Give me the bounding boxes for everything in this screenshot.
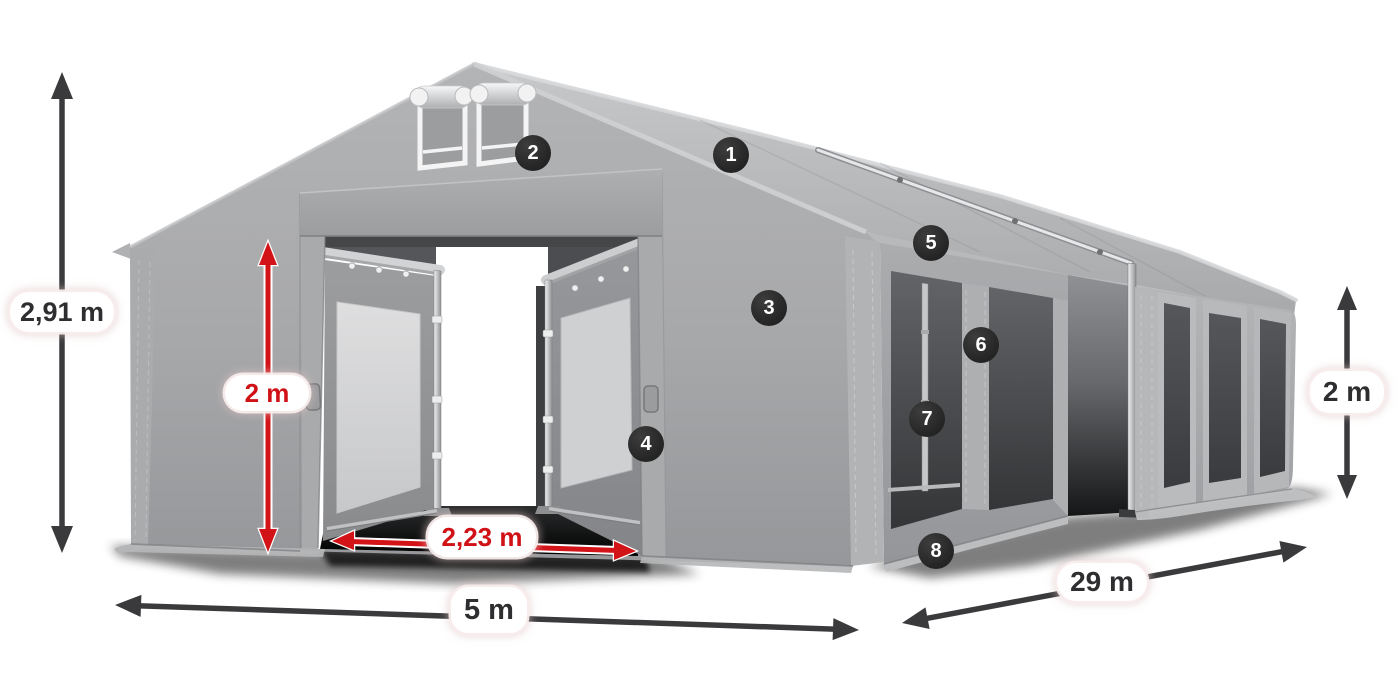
rolled-door-right: [535, 242, 642, 556]
callout-badge-2[interactable]: 2: [515, 135, 551, 171]
callout-badge-1[interactable]: 1: [713, 137, 749, 173]
dimension-label-front-width: 5 m: [451, 587, 527, 633]
dimension-label-door-width: 2,23 m: [428, 517, 536, 557]
callout-badge-5[interactable]: 5: [913, 225, 949, 261]
callout-badge-8[interactable]: 8: [918, 533, 954, 569]
door-pole-left: [434, 270, 441, 512]
rolled-door-left: [322, 252, 452, 541]
callout-badge-7[interactable]: 7: [909, 401, 945, 437]
rear-window-1: [1164, 303, 1190, 488]
callout-badge-3[interactable]: 3: [751, 290, 787, 326]
dimension-label-total-height: 2,91 m: [10, 292, 114, 332]
side-wall-front-module: [880, 243, 1068, 572]
callout-badge-6[interactable]: 6: [963, 327, 999, 363]
door-handle-right: [644, 386, 658, 412]
front-corner-column: [845, 236, 884, 566]
side-wall-rear-module: [1135, 287, 1316, 520]
callout-badge-4[interactable]: 4: [628, 426, 664, 462]
tent-illustration: [0, 0, 1400, 700]
door-window-left: [337, 302, 420, 513]
dimension-label-side-height: 2 m: [1310, 371, 1384, 413]
rear-window-2: [1209, 313, 1241, 483]
dimension-label-side-length: 29 m: [1057, 563, 1147, 601]
side-window-2: [989, 287, 1053, 510]
rear-window-3: [1260, 319, 1286, 477]
roof-vent-left: [410, 86, 473, 168]
tent-dimensions-diagram: 2,91 m 2 m 2,23 m 5 m 29 m 2 m 1 2 3 4 5…: [0, 0, 1400, 700]
door-pole-right: [545, 280, 552, 510]
dimension-label-door-height: 2 m: [225, 375, 309, 411]
door-window-right: [561, 298, 632, 488]
